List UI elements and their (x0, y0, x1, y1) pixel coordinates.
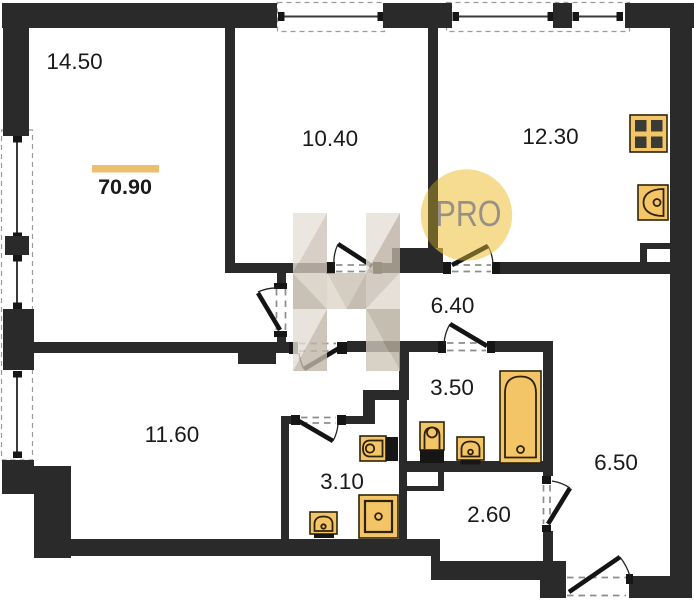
svg-text:2.60: 2.60 (467, 502, 511, 527)
svg-text:10.40: 10.40 (302, 126, 358, 151)
svg-text:6.50: 6.50 (594, 450, 638, 475)
svg-text:11.60: 11.60 (145, 422, 200, 447)
svg-text:12.30: 12.30 (522, 124, 578, 149)
svg-text:70.90: 70.90 (98, 175, 152, 199)
svg-text:14.50: 14.50 (46, 49, 102, 74)
svg-text:6.40: 6.40 (431, 293, 475, 318)
svg-text:PRO: PRO (436, 193, 502, 234)
svg-text:3.10: 3.10 (320, 469, 364, 494)
svg-text:3.50: 3.50 (430, 375, 474, 400)
